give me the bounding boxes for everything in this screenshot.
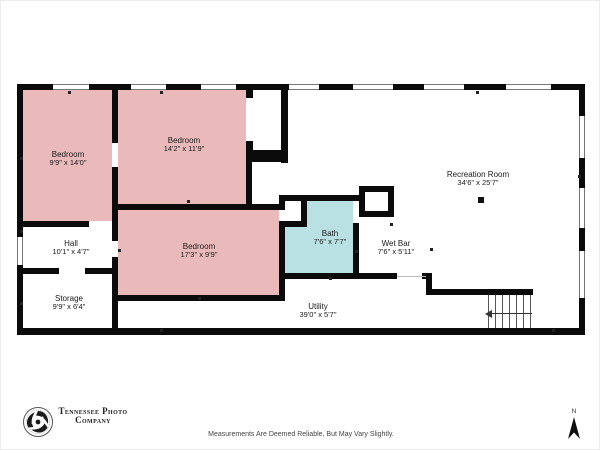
bath-alcove-fill — [285, 201, 301, 221]
wall-stairs-top — [429, 289, 533, 295]
dimension-tick — [20, 157, 23, 160]
dimension-tick — [552, 329, 555, 332]
dimension-tick — [187, 200, 190, 203]
opening-utility-line — [397, 276, 426, 277]
compass: N — [564, 409, 584, 445]
wall-bed1-bottom — [23, 221, 89, 227]
room-label-bedroom-3: Bedroom 17'3" x 9'9" — [181, 242, 218, 260]
window-right-3 — [579, 251, 585, 298]
disclaimer-text: Measurements Are Deemed Reliable, But Ma… — [1, 431, 600, 438]
room-label-storage: Storage 9'9" x 6'4" — [53, 294, 86, 312]
room-dims: 9'9" x 14'0" — [50, 159, 87, 168]
stair-tread — [502, 295, 503, 328]
window-top-7 — [506, 84, 551, 90]
window-top-4 — [289, 84, 319, 90]
dimension-tick — [390, 223, 393, 226]
wall-bed2-bottom — [112, 204, 285, 210]
dimension-tick — [160, 91, 163, 94]
stairs-direction-line — [491, 313, 532, 314]
dimension-tick — [118, 249, 121, 252]
window-top-1 — [53, 84, 89, 90]
floor-plan-canvas: Bedroom 9'9" x 14'0" Bedroom 14'2" x 11'… — [0, 0, 600, 450]
window-left-1 — [17, 237, 23, 265]
dimension-tick — [355, 250, 358, 253]
window-top-6 — [424, 84, 464, 90]
room-label-bedroom-1: Bedroom 9'9" x 14'0" — [50, 150, 87, 168]
dimension-tick — [329, 277, 332, 280]
wall-hall-storage-right — [85, 268, 112, 274]
room-label-bedroom-2: Bedroom 14'2" x 11'9" — [164, 136, 205, 154]
wall-bath-alcove-bottom — [285, 221, 301, 227]
window-right-1 — [579, 116, 585, 158]
room-dims: 14'2" x 11'9" — [164, 145, 205, 154]
dimension-tick — [20, 302, 23, 305]
wall-closet1-bottom — [246, 150, 288, 162]
north-arrow-icon — [565, 416, 583, 440]
wall-bed3-right-lower — [279, 221, 285, 301]
dimension-tick — [430, 248, 433, 251]
window-top-3 — [201, 84, 236, 90]
room-dims: 34'6" x 25'7" — [447, 179, 509, 188]
room-dims: 39'0" x 5'7" — [300, 311, 337, 320]
stair-tread — [523, 295, 524, 328]
room-dims: 7'6" x 7'7" — [314, 238, 347, 247]
room-dims: 17'3" x 9'9" — [181, 251, 218, 260]
wall-hall-right-lower — [112, 257, 118, 328]
wall-closet1-stub-mid — [246, 141, 253, 150]
wall-bed1-bed2-upper — [112, 90, 118, 143]
logo-line-2: Company — [51, 416, 135, 425]
dimension-tick — [20, 230, 23, 233]
wall-closet2-top — [359, 186, 394, 192]
room-label-wet-bar: Wet Bar 7'6" x 5'11" — [378, 239, 414, 257]
room-label-bath: Bath 7'6" x 7'7" — [314, 229, 347, 247]
dimension-tick — [578, 175, 581, 178]
room-label-hall: Hall 10'1" x 4'7" — [53, 239, 90, 257]
wall-closet2-bottom — [359, 211, 394, 217]
room-label-utility: Utility 39'0" x 5'7" — [300, 302, 337, 320]
wall-bed2-right-lower — [246, 162, 252, 204]
wall-bath-top — [279, 195, 359, 201]
dimension-tick — [198, 297, 201, 300]
stair-tread — [516, 295, 517, 328]
wall-closet1-stub-top — [246, 90, 253, 98]
room-dims: 10'1" x 4'7" — [53, 248, 90, 257]
stair-tread — [530, 295, 531, 328]
stairs-direction-arrow-icon — [485, 310, 492, 318]
room-dims: 7'6" x 5'11" — [378, 248, 414, 257]
window-top-2 — [131, 84, 166, 90]
room-label-recreation-room: Recreation Room 34'6" x 25'7" — [447, 170, 509, 188]
wall-hall-storage-left — [23, 268, 59, 274]
stair-tread — [495, 295, 496, 328]
dimension-tick — [476, 91, 479, 94]
window-right-2 — [579, 188, 585, 228]
stair-tread — [509, 295, 510, 328]
window-top-5 — [353, 84, 393, 90]
dimension-tick — [68, 91, 71, 94]
wall-hall-right-upper — [112, 210, 118, 241]
wall-bath-wetbar-bottom — [279, 273, 397, 279]
dimension-tick — [160, 329, 163, 332]
support-post — [478, 197, 484, 203]
room-dims: 9'9" x 6'4" — [53, 303, 86, 312]
wall-outer-left — [17, 84, 23, 335]
wall-bath-alcove-right — [301, 201, 307, 227]
wall-outer-bottom — [17, 328, 585, 335]
logo-company-name: Tennessee Photo Company — [51, 407, 135, 426]
